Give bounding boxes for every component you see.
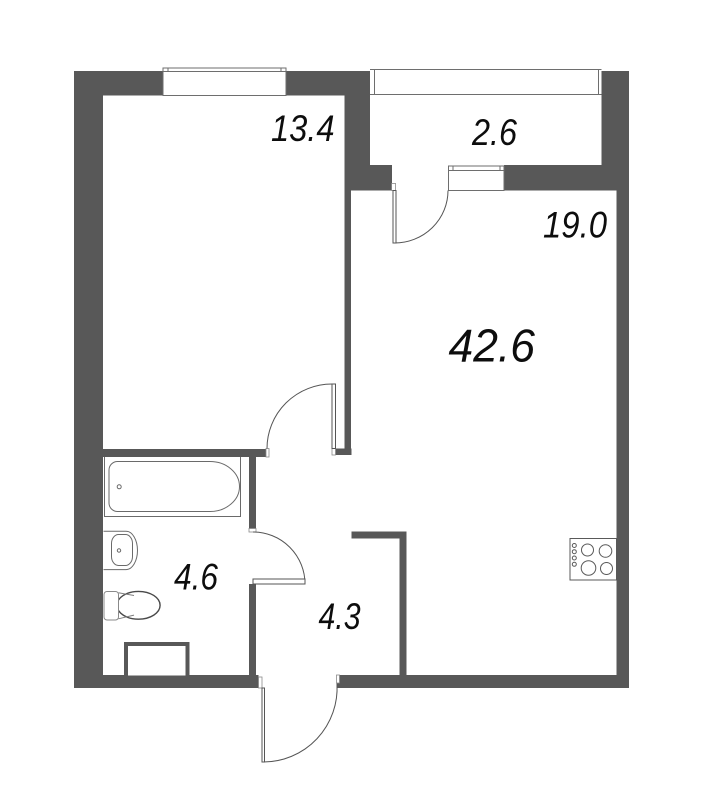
svg-text:2.6: 2.6 (471, 112, 517, 153)
svg-text:19.0: 19.0 (543, 205, 607, 246)
svg-text:13.4: 13.4 (271, 108, 335, 149)
svg-text:4.6: 4.6 (174, 557, 218, 598)
svg-text:4.3: 4.3 (319, 596, 361, 637)
svg-text:42.6: 42.6 (449, 320, 536, 372)
